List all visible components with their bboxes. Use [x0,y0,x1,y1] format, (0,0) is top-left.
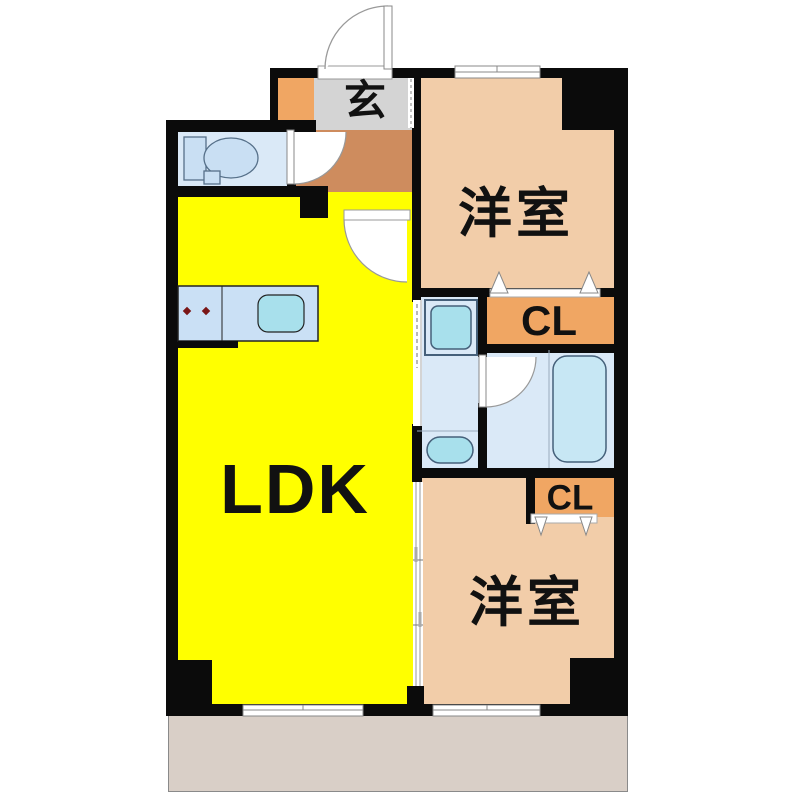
room-washroom [417,296,482,472]
wall-segment [287,126,296,190]
wall-segment [407,686,424,716]
room-bathroom [482,348,616,472]
wall-segment [300,186,328,218]
wall-segment [478,403,487,469]
wall-segment [166,704,628,716]
wall-segment [166,120,178,716]
closet-top-label: CL [521,300,577,342]
bedroom-bottom-label: 洋室 [469,576,585,630]
room-toilet [174,128,290,190]
wall-segment [412,68,421,302]
wall-segment [412,468,628,478]
wall-segment [526,476,535,524]
pillar [562,68,628,130]
wall-segment [614,68,628,716]
shoe-cabinet [276,76,314,126]
entrance-label: 玄 [344,80,390,122]
wall-segment [478,344,628,353]
wall-segment [412,288,628,297]
pillar [166,660,212,712]
floor-plan: 玄 洋室 LDK CL 洋室 CL [0,0,800,800]
wall-segment [478,296,487,357]
ldk-label: LDK [220,454,370,524]
closet-bottom-label: CL [547,481,594,516]
balcony [168,714,628,792]
bedroom-top-label: 洋室 [458,187,574,241]
pillar [570,658,628,716]
